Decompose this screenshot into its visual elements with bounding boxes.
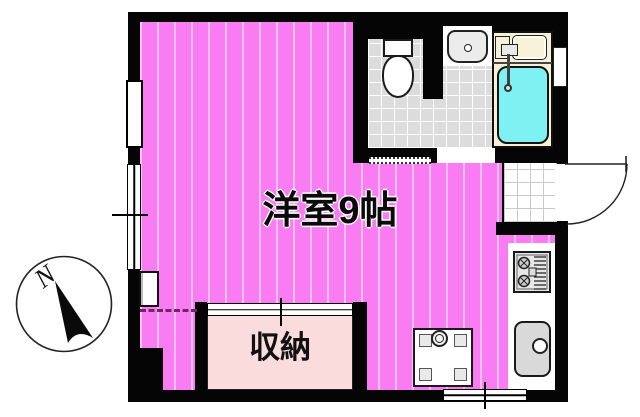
closet-wall-left [195,302,207,390]
bottom-left-wall-step [128,348,163,402]
toilet-door-dotted-line [369,157,431,164]
entrance-tile-floor [502,163,557,222]
compass: N [13,251,117,359]
closet-door-center-mark [280,298,282,326]
kitchen-sink-drain [532,338,548,354]
bathtub [497,66,549,144]
left-window-center-mark [112,214,148,216]
bath-window [553,47,567,87]
left-window-upper [126,80,143,148]
boundary-dashed-line [140,309,197,312]
toilet-bowl [382,55,414,98]
bath-divider-line [493,62,552,64]
entry-door-swing [553,150,640,230]
bottom-window-center-mark [484,382,486,409]
floorplan-canvas: 収納 N 洋室9帖 [0,0,640,417]
bath-shower-hose [507,54,510,87]
closet-label: 収納 [207,329,353,367]
pan-corner [454,368,467,381]
washer-faucet-inner [435,334,444,343]
toilet-partition-wall [423,24,443,99]
pipe-shaft-box [139,271,159,307]
closet-wall-right [353,302,367,390]
left-window-lower [127,164,141,270]
bath-shower-head [504,84,512,92]
washbasin-drain [464,44,472,52]
pan-corner [419,368,432,381]
bathroom-door-opening [437,148,495,163]
stove-icon [513,251,551,293]
pan-corner [419,334,432,347]
room-label: 洋室9帖 [235,188,425,234]
pan-corner [454,334,467,347]
